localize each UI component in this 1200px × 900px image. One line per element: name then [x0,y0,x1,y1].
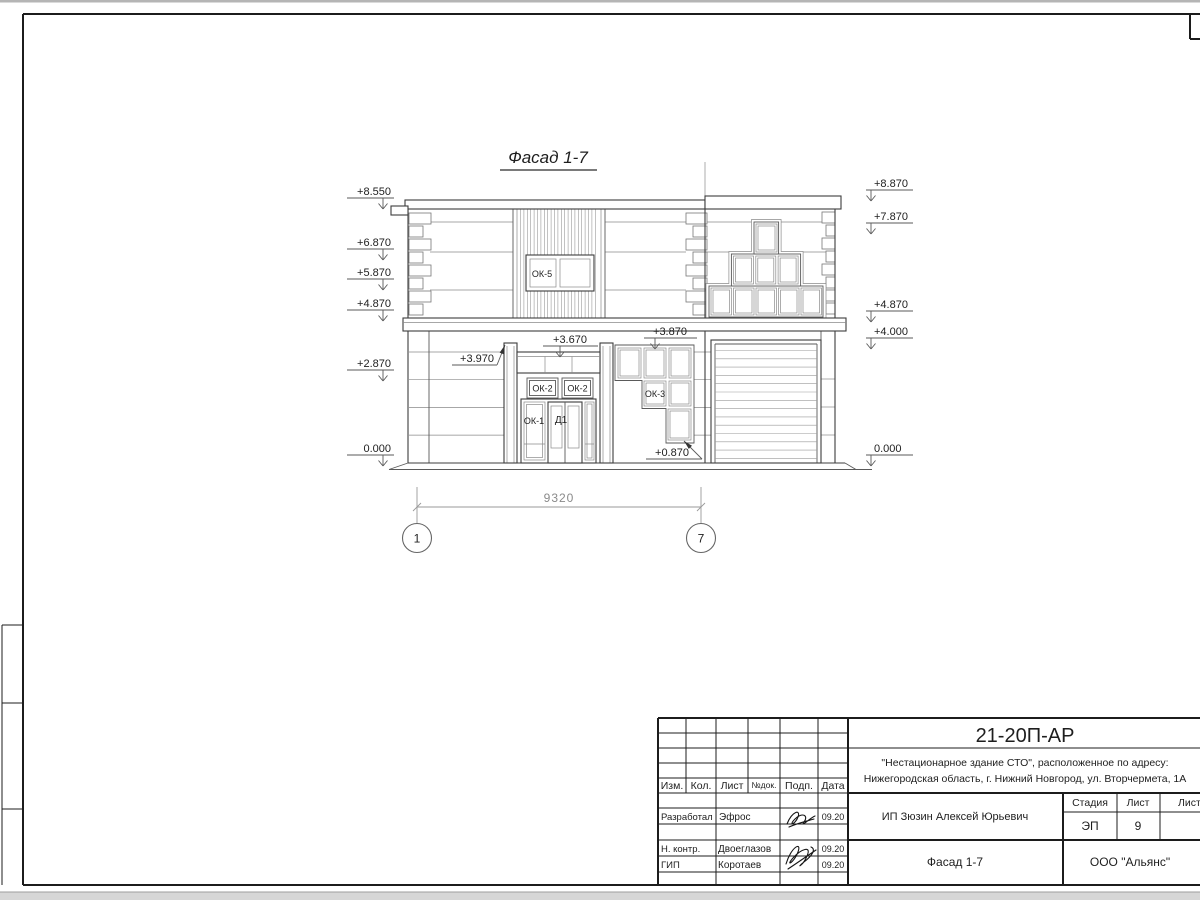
person-name-1: Двоеглазов [718,844,771,855]
facade-drawing: ОК-5 [389,162,872,470]
elevation-marks-left: +8.550 +6.870 +5.870 +4.870 +2.870 0.000 [347,186,394,466]
signature-2 [786,846,816,869]
parapet-bands [391,196,841,215]
rustication-lines-mid [694,352,711,435]
dimension-9320: 9320 [413,487,705,524]
svg-text:+0.870: +0.870 [655,447,689,459]
stage-label: Стадия [1072,797,1108,809]
sheets-label: Листов [1178,797,1200,809]
window-ok2-right: ОК-2 [562,378,593,398]
mark-4000: +4.000 [874,326,908,338]
client: ИП Зюзин Алексей Юрьевич [882,811,1029,823]
doc-number: 21-20П-АР [976,725,1075,747]
window-ok2-left: ОК-2 [527,378,558,398]
object-title: Фасад 1-7 [927,855,983,869]
mark-8550: +8.550 [357,186,391,198]
door-assembly: ОК-1 Д1 [521,399,596,463]
pyramid-windows [706,220,826,319]
ground-lines [389,463,872,470]
col-list: Лист [721,780,744,792]
quoins-left-corner [409,213,431,315]
axis-label-7: 7 [698,532,705,546]
person-role-0: Разработал [661,812,713,823]
drawing-sheet: ОК-5 [0,0,1200,900]
title-block-text: 21-20П-АР "Нестационарное здание СТО", р… [661,725,1200,871]
person-role-1: Н. контр. [661,844,700,855]
person-date-1: 09.20 [822,844,845,854]
callout-0870: +0.870 [646,441,702,459]
rustication-ticks-right-pier [821,379,835,435]
company: ООО "Альянс" [1090,855,1170,869]
col-izm: Изм. [661,780,684,792]
elevation-marks-right: +8.870 +7.870 +4.870 +4.000 0.000 [866,178,913,466]
person-name-0: Эфрос [719,811,751,823]
mark-6870: +6.870 [357,237,391,249]
window-ok5: ОК-5 [526,255,594,291]
window-ok3-group: ОК-3 [615,345,694,443]
page-bottom-edge [0,893,1200,900]
person-date-0: 09.20 [822,812,845,822]
person-role-2: ГИП [661,860,680,871]
mark-5870: +5.870 [357,267,391,279]
window-label-ok5: ОК-5 [532,269,552,279]
window-label-ok2-left: ОК-2 [532,384,552,394]
window-label-ok3: ОК-3 [645,389,665,399]
window-label-ok1: ОК-1 [524,416,544,426]
mark-2870: +2.870 [357,358,391,370]
svg-text:+3.970: +3.970 [460,353,494,365]
mark-0000-r: 0.000 [874,443,902,455]
mark-0000-l: 0.000 [363,443,391,455]
door-label-d1: Д1 [555,415,568,426]
svg-text:+3.870: +3.870 [653,326,687,338]
mark-4870-l: +4.870 [357,298,391,310]
svg-text:+3.670: +3.670 [553,334,587,346]
col-data: Дата [821,780,844,792]
mark-7870: +7.870 [874,211,908,223]
dimension-text: 9320 [544,491,575,505]
mark-8870: +8.870 [874,178,908,190]
callout-3970: +3.970 [452,345,505,365]
sheet-label: Лист [1127,797,1150,809]
person-date-2: 09.20 [822,860,845,870]
col-ndok: №док. [752,780,777,790]
drawing-canvas: ОК-5 [0,0,1200,900]
interfloor-band [403,318,846,331]
garage-door [711,340,821,463]
mark-4870-r: +4.870 [874,299,908,311]
person-name-2: Коротаев [718,860,761,871]
axis-bubbles: 1 7 [403,524,716,553]
page-top-edge [0,0,1200,3]
view-title: Фасад 1-7 [500,148,597,170]
signature-1 [787,812,815,827]
col-podp: Подп. [785,780,813,792]
address-line2: Нижегородская область, г. Нижний Новгоро… [864,773,1187,785]
quoins-centre-corner [686,213,707,315]
window-label-ok2-right: ОК-2 [567,384,587,394]
view-title-text: Фасад 1-7 [508,148,588,167]
address-line1: "Нестационарное здание СТО", расположенн… [881,757,1168,769]
axis-label-1: 1 [414,532,421,546]
col-kol: Кол. [691,780,712,792]
stage-value: ЭП [1081,819,1098,833]
sheet-value: 9 [1135,819,1142,833]
